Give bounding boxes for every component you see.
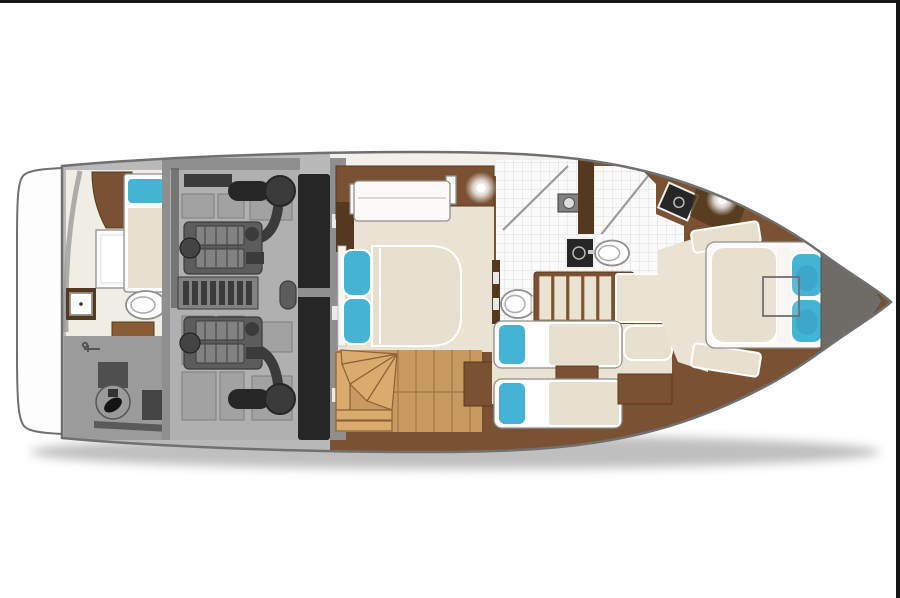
yacht-floor-plan — [0, 0, 900, 598]
top-border-line — [0, 0, 900, 3]
engine-room-top-band — [170, 158, 300, 170]
master-head-toilet — [595, 241, 629, 266]
bulkhead-door-gap — [298, 288, 330, 297]
crew-bench — [112, 322, 154, 338]
twin-bed-lower — [494, 379, 622, 428]
crew-bed — [124, 174, 168, 292]
twin-cabinet — [618, 374, 672, 404]
twin-nightstand — [556, 366, 598, 380]
crew-bed-mattress — [127, 207, 165, 289]
ceiling-light-master — [706, 184, 738, 216]
vip-pillow-2 — [343, 298, 371, 344]
engine-port — [180, 222, 264, 274]
crew-berth-inner — [101, 235, 127, 283]
crew-cabin-aft — [66, 170, 170, 340]
shower-port — [496, 160, 580, 234]
stair-treads — [539, 276, 612, 320]
vip-bed — [338, 246, 461, 346]
battery-bank — [178, 277, 258, 309]
twin-bed-upper — [494, 321, 622, 368]
twin-bed-upper-pillow — [498, 324, 526, 365]
floor-plan-canvas — [0, 0, 900, 598]
right-border-line — [896, 0, 900, 598]
companionway-stairs — [534, 272, 668, 324]
head-divider-wall — [578, 156, 594, 240]
crew-sink-drain — [79, 302, 83, 306]
vip-mattress — [372, 246, 461, 346]
vent-slab — [184, 174, 232, 187]
crew-bed-pillow — [127, 178, 165, 204]
day-head-door-wall — [492, 260, 500, 326]
ceiling-light-vip — [465, 172, 497, 204]
engine-room — [162, 158, 346, 440]
steering-gear — [96, 385, 130, 419]
hull-interior — [50, 140, 900, 470]
expansion-tank — [280, 281, 296, 309]
vip-cabin — [336, 166, 498, 432]
engine-starboard — [180, 317, 264, 369]
twin-cabin-seat — [624, 326, 672, 360]
shower-starboard — [594, 166, 656, 240]
vip-sofa — [350, 176, 456, 221]
forward-bulkhead — [298, 174, 330, 440]
lazarette-box — [98, 362, 128, 388]
swim-platform — [17, 168, 62, 434]
spiral-stairs — [336, 350, 397, 431]
deck-hatch-outline — [763, 277, 799, 316]
vanity-sink — [566, 238, 594, 268]
vip-pillow-1 — [343, 250, 371, 296]
twin-bed-lower-pillow — [498, 382, 526, 425]
crew-sink-unit — [66, 288, 96, 320]
